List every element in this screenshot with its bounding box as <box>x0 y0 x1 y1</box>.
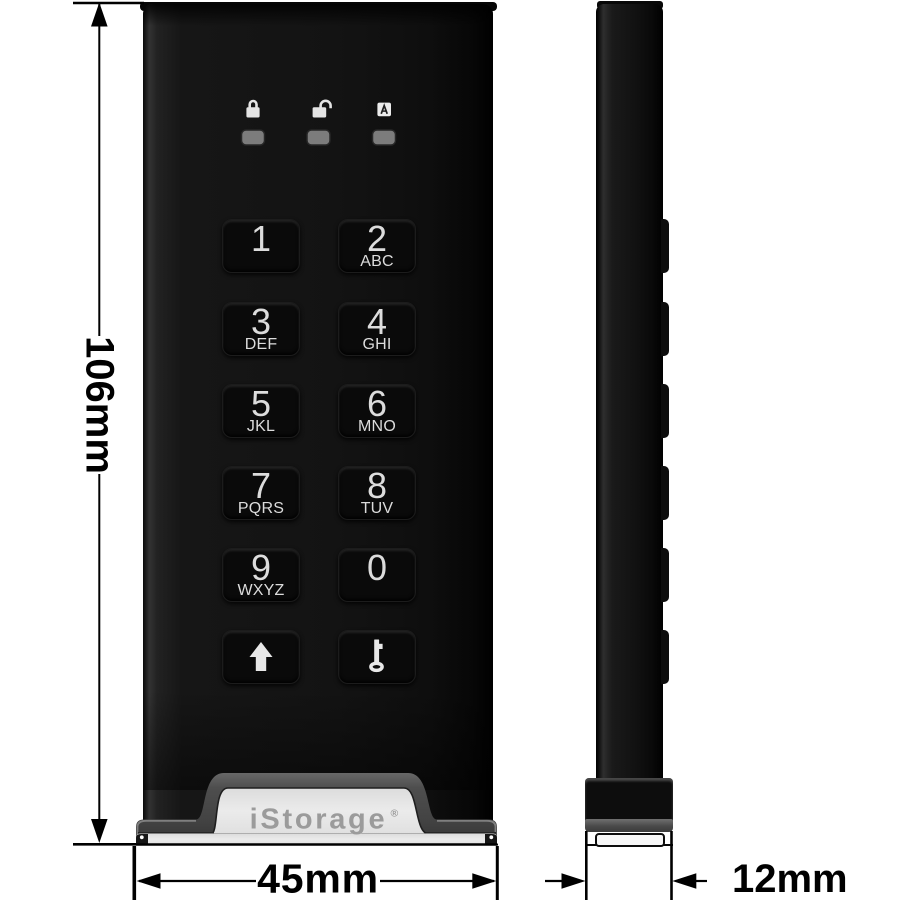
svg-text:106mm: 106mm <box>78 336 122 474</box>
svg-text:12mm: 12mm <box>732 857 848 900</box>
svg-text:45mm: 45mm <box>257 855 379 900</box>
